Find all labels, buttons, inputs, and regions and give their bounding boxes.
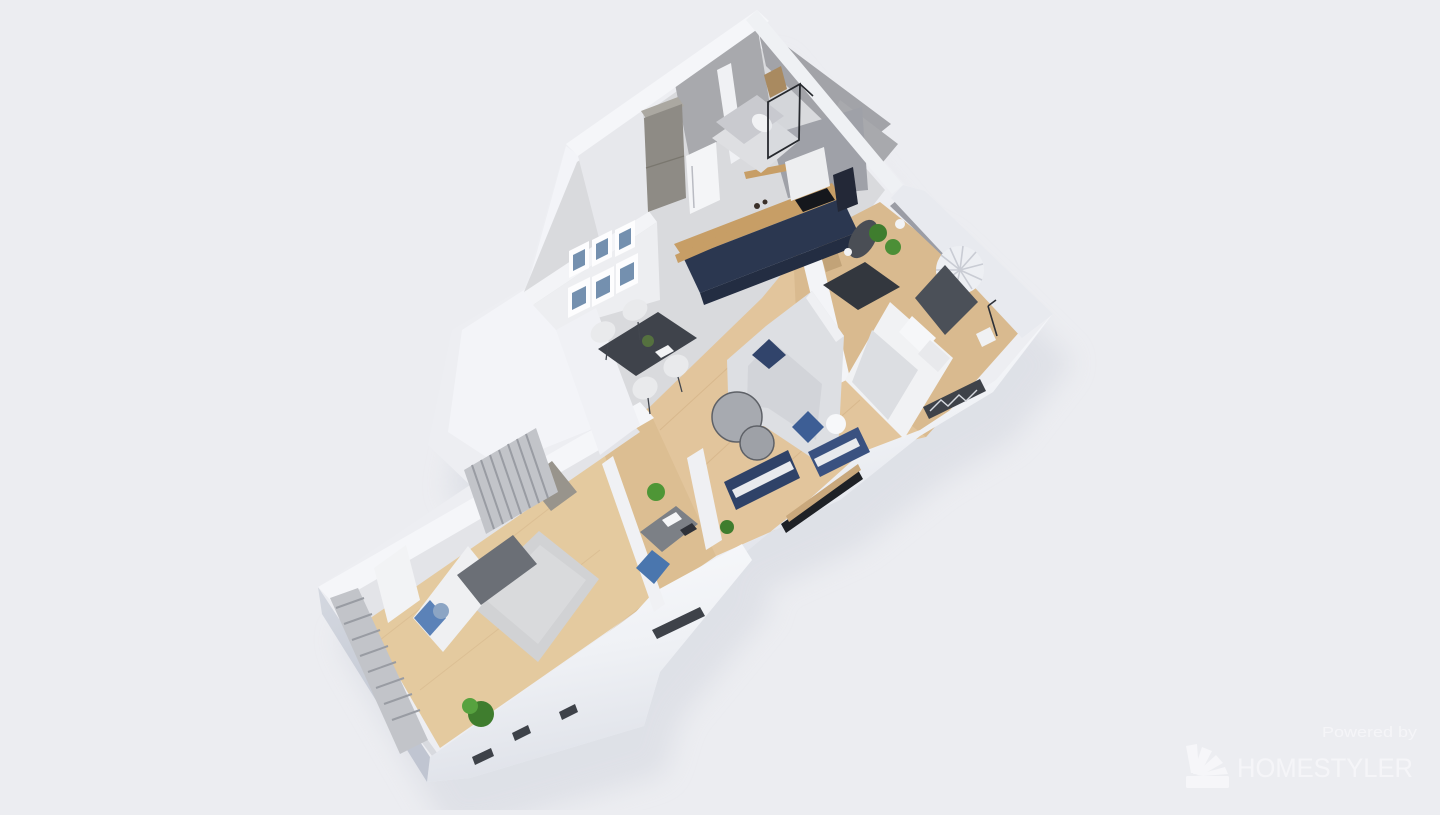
svg-text:HOMESTYLER: HOMESTYLER <box>1237 753 1413 783</box>
svg-text:Powered by: Powered by <box>1322 724 1418 741</box>
